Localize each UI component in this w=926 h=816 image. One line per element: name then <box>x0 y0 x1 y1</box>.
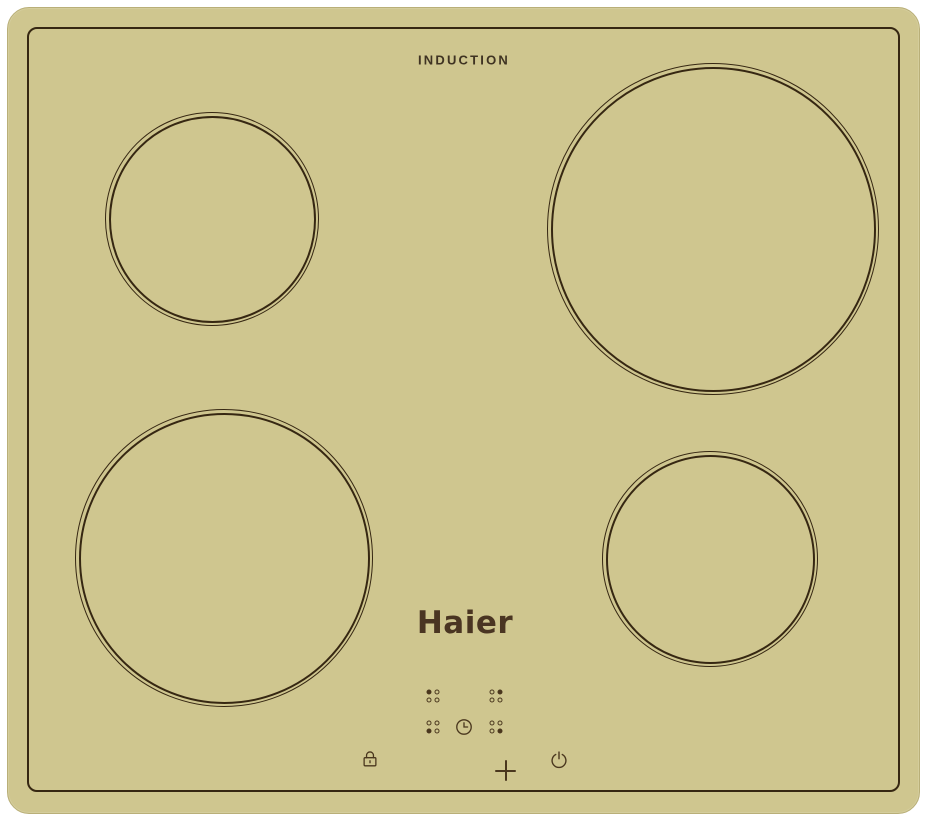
cooktop-type-label: INDUCTION <box>418 53 510 68</box>
zone-dot-top-left <box>427 690 432 695</box>
zone-dot-bottom-right <box>435 698 440 703</box>
cooking-zone-inner-ring <box>551 67 876 392</box>
zone-dot-bottom-left <box>427 698 432 703</box>
cooking-zone-back-left <box>105 112 319 326</box>
zone-dot-top-left <box>490 721 495 726</box>
zone-dot-bottom-right <box>435 729 440 734</box>
zone-dot-bottom-left <box>490 729 495 734</box>
child-lock-key[interactable] <box>361 749 380 769</box>
zone-dot-bottom-right <box>498 698 503 703</box>
zone-select-key-back-right[interactable] <box>490 690 503 703</box>
cooking-zone-front-left <box>75 409 373 707</box>
zone-dot-top-left <box>427 721 432 726</box>
zone-dot-top-right <box>498 721 503 726</box>
power-icon <box>550 751 569 770</box>
timer-key[interactable] <box>455 718 474 737</box>
zone-dot-bottom-left <box>427 729 432 734</box>
cooking-zone-front-right <box>602 451 818 667</box>
cooking-zone-back-right <box>547 63 879 395</box>
zone-dot-bottom-right <box>498 729 503 734</box>
zone-select-key-back-left[interactable] <box>427 690 440 703</box>
product-photo: INDUCTION Haier <box>0 0 926 816</box>
zone-dot-top-right <box>435 690 440 695</box>
zone-dot-top-left <box>490 690 495 695</box>
cooktop-glass-surface: INDUCTION Haier <box>7 7 920 814</box>
zone-dot-bottom-left <box>490 698 495 703</box>
cooking-zone-inner-ring <box>79 413 370 704</box>
padlock-icon <box>361 749 380 769</box>
zone-dot-top-right <box>498 690 503 695</box>
clock-icon <box>455 718 474 737</box>
zone-select-key-front-right[interactable] <box>490 721 503 734</box>
zone-select-key-front-left[interactable] <box>427 721 440 734</box>
power-key[interactable] <box>550 751 569 770</box>
cooking-zone-inner-ring <box>109 116 316 323</box>
zone-dot-top-right <box>435 721 440 726</box>
brand-logo: Haier <box>417 605 513 641</box>
cooking-zone-inner-ring <box>606 455 815 664</box>
